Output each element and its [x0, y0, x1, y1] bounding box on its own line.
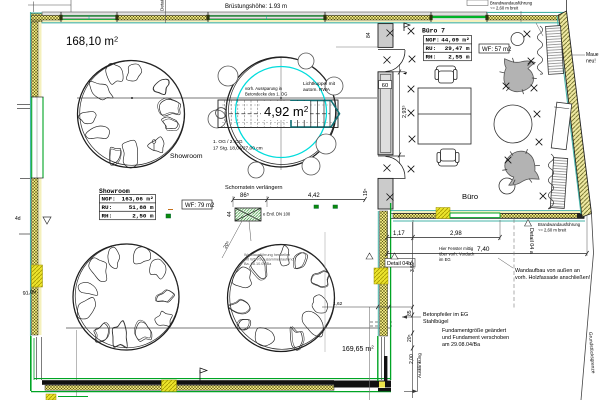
svg-text:mit WDVS zusammenlaufend: mit WDVS zusammenlaufend: [244, 257, 294, 261]
svg-text:Hier Fenster mittig: Hier Fenster mittig: [439, 246, 474, 251]
svg-text:4,42: 4,42: [308, 193, 320, 199]
svg-text:Wandausführung herstellen: Wandausführung herstellen: [244, 253, 290, 257]
svg-text:Fundamentgröße geändert: Fundamentgröße geändert: [442, 328, 507, 334]
svg-text:168,10 m2: 168,10 m2: [66, 35, 118, 49]
svg-text:2,98: 2,98: [450, 231, 462, 237]
svg-text:Showroom: Showroom: [99, 188, 130, 195]
svg-text:neu!: neu!: [586, 59, 596, 65]
svg-text:NGF:: NGF:: [102, 196, 116, 203]
svg-text:20⁵: 20⁵: [407, 334, 413, 342]
svg-text:RH:: RH:: [426, 54, 437, 61]
svg-text:Detail 04 a: Detail 04 a: [528, 228, 534, 254]
svg-text:Schornstein verlängern: Schornstein verlängern: [225, 185, 283, 191]
svg-text:und Fundament verschoben: und Fundament verschoben: [442, 335, 509, 341]
svg-text:2,00: 2,00: [409, 354, 415, 364]
svg-text:7,40: 7,40: [477, 246, 490, 253]
svg-text:Büro 7: Büro 7: [422, 28, 445, 35]
svg-text:vorh. Holzfassade anschließen!: vorh. Holzfassade anschließen!: [515, 275, 591, 281]
svg-text:im EG: im EG: [439, 257, 451, 262]
svg-text:86⁵: 86⁵: [240, 192, 250, 199]
svg-text:Lichtkuppel mit: Lichtkuppel mit: [303, 81, 336, 87]
svg-text:17 Stg. 18,06/27,00 cm: 17 Stg. 18,06/27,00 cm: [213, 146, 263, 152]
svg-text:autom. RWA: autom. RWA: [303, 87, 331, 93]
svg-text:4d: 4d: [15, 216, 21, 222]
svg-text:51,88 m: 51,88 m: [129, 204, 154, 211]
svg-text:Detail: Detail: [160, 0, 165, 11]
svg-text:84: 84: [366, 32, 372, 38]
svg-text:1,62: 1,62: [333, 301, 343, 307]
svg-text:Ba. 08.10.04/Ba: Ba. 08.10.04/Ba: [244, 262, 272, 266]
svg-text:am 29.08.04/Ba: am 29.08.04/Ba: [442, 342, 480, 348]
svg-text:4,92 m2: 4,92 m2: [264, 104, 309, 119]
svg-text:Detail 04b: Detail 04b: [387, 261, 411, 267]
svg-text:19⁵: 19⁵: [363, 188, 369, 196]
svg-text:~= 2,60 m breit: ~= 2,60 m breit: [538, 227, 567, 232]
svg-text:e Entl. DN 100: e Entl. DN 100: [263, 212, 291, 217]
svg-text:2,55 m: 2,55 m: [448, 54, 470, 61]
svg-text:Betondecke des 1. OG: Betondecke des 1. OG: [245, 92, 287, 97]
svg-text:60: 60: [382, 83, 388, 89]
svg-text:3,59⁵: 3,59⁵: [410, 260, 416, 272]
svg-text:Brüstungshöhe: 1.93 m: Brüstungshöhe: 1.93 m: [225, 4, 287, 10]
svg-text:RU:: RU:: [426, 45, 437, 52]
svg-text:1. OG / 2. OG: 1. OG / 2. OG: [213, 139, 243, 145]
svg-text:über vorh. Vordach: über vorh. Vordach: [439, 251, 475, 256]
svg-text:29,47 m: 29,47 m: [445, 45, 470, 52]
svg-text:Büro: Büro: [462, 192, 478, 201]
svg-text:1,17: 1,17: [393, 231, 405, 237]
svg-text:Showroom: Showroom: [170, 153, 203, 160]
svg-text:2,50 m: 2,50 m: [132, 213, 154, 220]
svg-text:2,93⁵: 2,93⁵: [402, 105, 408, 118]
svg-text:RH:: RH:: [102, 213, 113, 220]
svg-text:Maue: Maue: [586, 52, 599, 58]
svg-text:Wandaufbau von außen an: Wandaufbau von außen an: [515, 268, 580, 274]
svg-text:Betonpfeiler im EG: Betonpfeiler im EG: [423, 312, 468, 318]
svg-text:44,09 m²: 44,09 m²: [441, 37, 469, 44]
svg-text:Stahlbügel: Stahlbügel: [423, 319, 448, 325]
svg-text:163,06 m²: 163,06 m²: [122, 196, 154, 203]
svg-text:Brandwandausführung: Brandwandausführung: [538, 222, 581, 227]
svg-text:WF: 79 m2: WF: 79 m2: [185, 203, 215, 209]
svg-text:NGF:: NGF:: [426, 37, 440, 44]
svg-text:~= 2,60 m breit: ~= 2,60 m breit: [490, 6, 519, 11]
svg-text:44: 44: [227, 211, 233, 217]
svg-text:WF: 57 m2: WF: 57 m2: [482, 47, 512, 53]
svg-text:RU:: RU:: [102, 204, 113, 211]
svg-text:vorh. Aussparung in: vorh. Aussparung in: [245, 86, 283, 91]
